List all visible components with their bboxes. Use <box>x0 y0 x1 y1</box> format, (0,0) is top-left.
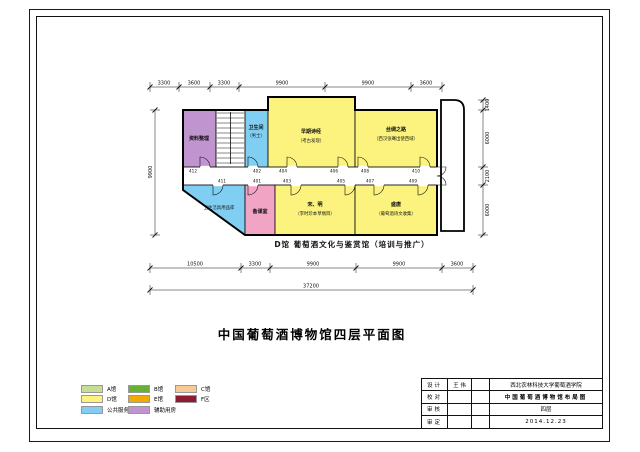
room-label-songming: 宋、明 <box>306 201 322 208</box>
legend-item: C馆 <box>175 385 210 392</box>
dim-bottom: 9900 <box>393 262 406 268</box>
room-number: 403 <box>283 179 291 184</box>
room-label-early: 早期诗经 <box>301 128 321 135</box>
room-label-wc-sub: （男士） <box>247 132 265 139</box>
room-number: 411 <box>218 179 226 184</box>
legend-item: E馆 <box>128 395 163 402</box>
plan-caption: D馆 葡萄酒文化与鉴赏馆（培训与推广） <box>274 239 429 249</box>
legend-item: 公共服务区 <box>81 406 135 413</box>
dim-right: 2100 <box>485 170 491 183</box>
titleblock-value <box>448 391 472 403</box>
legend-swatch <box>128 395 150 403</box>
room-label-songming-sub: （李时珍本草纲目） <box>295 210 335 217</box>
room-number: 408 <box>361 169 369 174</box>
dim-bottom: 10500 <box>187 262 203 268</box>
room-number: 406 <box>330 169 338 174</box>
legend-label: A馆 <box>107 385 116 393</box>
legend-swatch <box>128 406 150 414</box>
titleblock-value <box>448 404 472 416</box>
legend-item: A馆 <box>81 385 116 392</box>
legend-label: F区 <box>201 395 210 403</box>
dim-bottom: 9900 <box>307 262 320 268</box>
legend-item: F区 <box>175 395 210 402</box>
dim-bottom: 3600 <box>451 262 464 268</box>
titleblock-blank <box>472 404 490 416</box>
titleblock-label: 审定 <box>422 416 448 428</box>
titleblock-label: 审核 <box>422 404 448 416</box>
dim-top: 3300 <box>158 81 171 87</box>
room-label-prep: 备课室 <box>251 208 267 215</box>
legend-swatch <box>81 385 103 393</box>
titleblock-sheet: 四层 <box>490 404 602 416</box>
titleblock-project: 中国葡萄酒博物馆布局图 <box>490 391 602 403</box>
titleblock-label: 设计 <box>422 379 448 391</box>
legend-label: 辅助用房 <box>154 406 176 414</box>
room-number: 407 <box>366 179 374 184</box>
drawing-title: 中国葡萄酒博物馆四层平面图 <box>152 324 472 343</box>
room-label-cleanstore: 卫生洁具用品库 <box>204 204 235 211</box>
room-label-wc: 卫生间 <box>248 124 263 131</box>
room-label-tang: 盛唐 <box>391 201 401 208</box>
legend-item: 辅助用房 <box>128 406 176 413</box>
drawing-sheet: 资料整理 卫生间 （男士） 早期诗经 （考古发现） 丝绸之路 （西汉张骞出使西域… <box>0 0 640 452</box>
dim-right: 6000 <box>485 204 491 217</box>
titleblock-blank <box>472 416 490 428</box>
right-shaft <box>441 100 464 231</box>
dim-top: 3300 <box>218 81 231 87</box>
room-label-archive: 资料整理 <box>189 135 209 142</box>
room-numbers: 412 402 404 406 408 410 411 401 403 405 … <box>189 169 420 184</box>
titleblock-blank <box>472 379 490 391</box>
legend-swatch <box>128 385 150 393</box>
dim-top: 9900 <box>362 81 375 87</box>
dim-top: 3600 <box>188 81 201 87</box>
legend-swatch <box>175 385 197 393</box>
room-label-tang-sub: （葡萄酒诗文收集） <box>376 210 416 217</box>
room-label-silk: 丝绸之路 <box>386 126 407 133</box>
room-songming <box>275 185 355 235</box>
room-number: 412 <box>189 169 197 174</box>
titleblock-blank <box>472 391 490 403</box>
room-number: 402 <box>253 169 261 174</box>
dim-bottom: 3300 <box>249 262 262 268</box>
titleblock-institute: 西北农林科技大学葡萄酒学院 <box>490 379 602 391</box>
dim-left: 9900 <box>148 166 154 179</box>
legend-label: B馆 <box>154 385 163 393</box>
dim-total: 37200 <box>303 284 319 290</box>
titleblock-value: 王 伟 <box>448 379 472 391</box>
legend-label: E馆 <box>154 395 163 403</box>
room-number: 410 <box>412 169 420 174</box>
titleblock-value <box>448 416 472 428</box>
room-number: 404 <box>279 169 287 174</box>
dim-right: 6000 <box>485 132 491 145</box>
title-block: 设计 王 伟 西北农林科技大学葡萄酒学院 校对 中国葡萄酒博物馆布局图 审核 四… <box>421 378 603 429</box>
titleblock-label: 校对 <box>422 391 448 403</box>
dim-right: 1400 <box>485 99 491 112</box>
legend-swatch <box>175 395 197 403</box>
room-number: 409 <box>409 179 417 184</box>
dim-top: 3600 <box>420 81 433 87</box>
legend-swatch <box>81 406 103 414</box>
room-number: 405 <box>337 179 345 184</box>
legend-item: B馆 <box>128 385 163 392</box>
room-label-early-sub: （考古发现） <box>298 137 324 144</box>
legend-item: D馆 <box>81 395 117 402</box>
room-label-silk-sub: （西汉张骞出使西域） <box>374 135 418 142</box>
titleblock-date: 2014.12.23 <box>490 416 602 428</box>
legend-swatch <box>81 395 103 403</box>
dim-top: 9900 <box>276 81 289 87</box>
room-number: 401 <box>253 179 261 184</box>
legend-label: D馆 <box>107 395 117 403</box>
legend-label: C馆 <box>201 385 210 393</box>
